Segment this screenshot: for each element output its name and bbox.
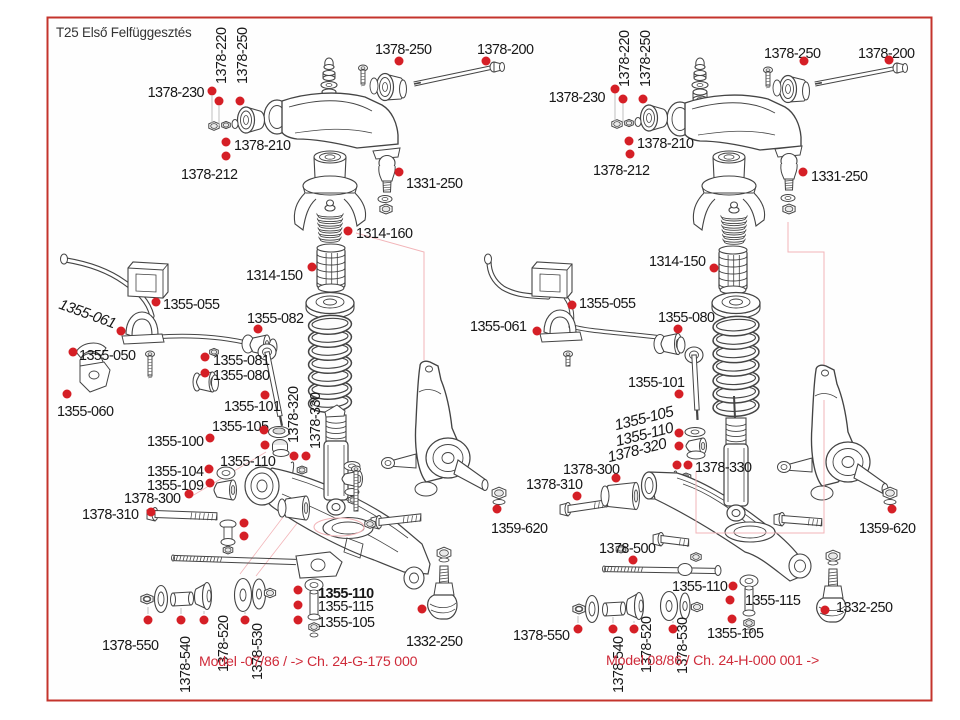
svg-text:1378-550: 1378-550 [513,628,570,644]
svg-text:1378-230: 1378-230 [148,85,205,101]
svg-text:1355-101: 1355-101 [628,375,685,391]
svg-text:1378-212: 1378-212 [181,167,238,183]
svg-text:1378-250: 1378-250 [375,42,432,58]
svg-text:1359-620: 1359-620 [859,521,916,537]
svg-text:1355-055: 1355-055 [163,297,220,313]
svg-text:1378-530: 1378-530 [250,623,266,680]
svg-text:1378-210: 1378-210 [637,136,694,152]
svg-text:1355-081: 1355-081 [213,353,270,369]
svg-text:1355-115: 1355-115 [745,593,801,609]
svg-text:1355-100: 1355-100 [147,434,204,450]
svg-text:1355-060: 1355-060 [57,404,114,420]
svg-text:1355-110: 1355-110 [672,579,728,595]
svg-text:1378-500: 1378-500 [599,541,656,557]
svg-text:1332-250: 1332-250 [836,600,893,616]
svg-text:1378-300: 1378-300 [124,491,181,507]
svg-text:1378-250: 1378-250 [638,30,654,87]
svg-text:1355-115: 1355-115 [318,599,374,615]
svg-text:1332-250: 1332-250 [406,634,463,650]
svg-text:1355-110: 1355-110 [220,454,276,470]
svg-text:1378-310: 1378-310 [82,507,139,523]
svg-text:1378-320: 1378-320 [286,386,302,443]
svg-text:1378-250: 1378-250 [235,27,251,84]
svg-text:1314-160: 1314-160 [356,226,413,242]
svg-text:Model 08/86 / Ch. 24-H-000 001: Model 08/86 / Ch. 24-H-000 001 -> [606,653,819,669]
svg-text:1355-105: 1355-105 [707,626,764,642]
svg-text:1331-250: 1331-250 [406,176,463,192]
svg-text:1378-220: 1378-220 [214,27,230,84]
svg-text:1378-330: 1378-330 [308,392,324,449]
svg-text:1378-550: 1378-550 [102,638,159,654]
svg-text:1378-540: 1378-540 [178,636,194,693]
svg-text:1359-620: 1359-620 [491,521,548,537]
svg-text:1378-310: 1378-310 [526,477,583,493]
svg-text:Model -07/86 / -> Ch. 24-G-175: Model -07/86 / -> Ch. 24-G-175 000 [199,654,418,670]
svg-text:1355-055: 1355-055 [579,296,636,312]
svg-text:1314-150: 1314-150 [246,268,303,284]
svg-text:T25 Első Felfüggesztés: T25 Első Felfüggesztés [56,25,192,40]
svg-text:1355-101: 1355-101 [224,399,281,415]
svg-text:1355-105: 1355-105 [318,615,375,631]
svg-text:1355-080: 1355-080 [213,368,270,384]
svg-text:1314-150: 1314-150 [649,254,706,270]
svg-text:1355-082: 1355-082 [247,311,304,327]
svg-text:1378-300: 1378-300 [563,462,620,478]
svg-text:1355-050: 1355-050 [79,348,136,364]
svg-text:1378-210: 1378-210 [234,138,291,154]
svg-text:1378-330: 1378-330 [695,460,752,476]
svg-text:1378-212: 1378-212 [593,163,650,179]
svg-text:1378-250: 1378-250 [764,46,821,62]
svg-text:1355-061: 1355-061 [470,319,527,335]
svg-text:1378-230: 1378-230 [549,90,606,106]
svg-text:1331-250: 1331-250 [811,169,868,185]
svg-text:1355-080: 1355-080 [658,310,715,326]
svg-text:1378-220: 1378-220 [617,30,633,87]
svg-text:1378-200: 1378-200 [477,42,534,58]
